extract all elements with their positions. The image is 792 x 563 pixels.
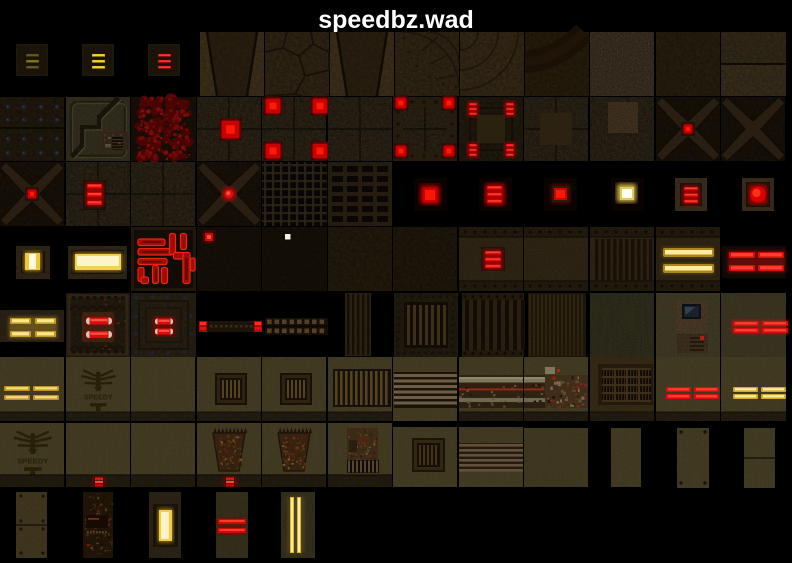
svg-text:SPEEDY: SPEEDY bbox=[17, 456, 49, 465]
svg-text:SPEEDY: SPEEDY bbox=[84, 394, 113, 402]
svg-text:speedbz.wad: speedbz.wad bbox=[318, 6, 474, 34]
